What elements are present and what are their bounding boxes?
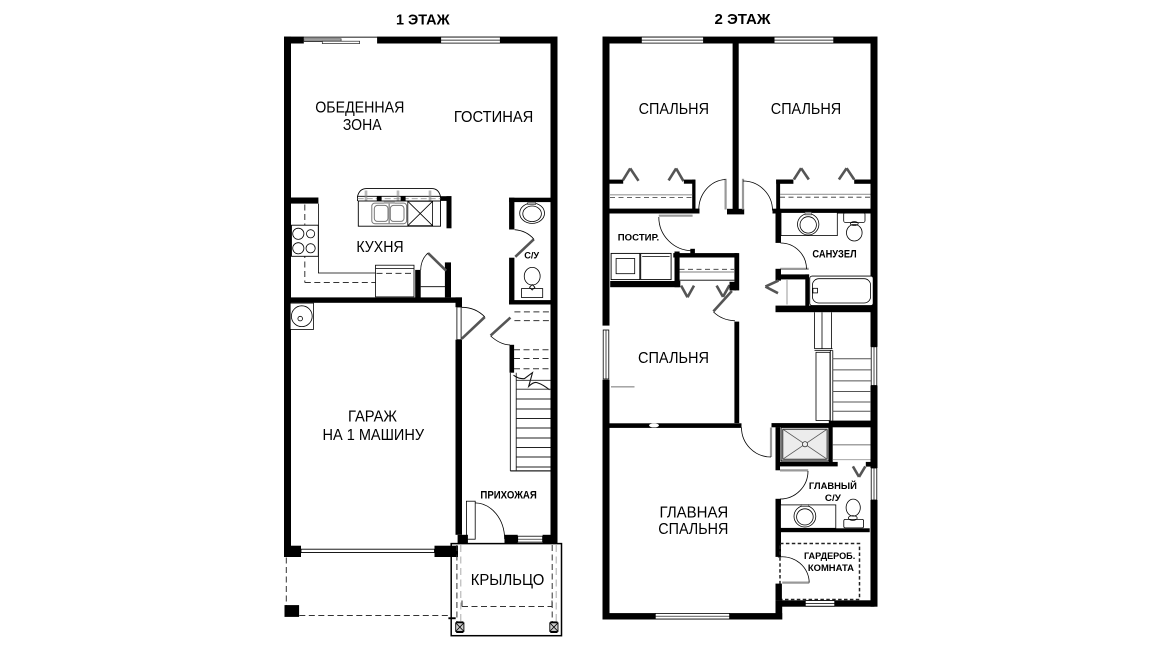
svg-text:СПАЛЬНЯ: СПАЛЬНЯ (639, 101, 709, 118)
svg-text:КРЫЛЬЦО: КРЫЛЬЦО (471, 572, 545, 589)
svg-text:СПАЛЬНЯ: СПАЛЬНЯ (771, 101, 841, 118)
svg-text:СПАЛЬНЯ: СПАЛЬНЯ (638, 350, 709, 367)
svg-text:1 ЭТАЖ: 1 ЭТАЖ (396, 12, 450, 29)
svg-text:ГАРАЖ: ГАРАЖ (348, 408, 398, 425)
svg-text:СПАЛЬНЯ: СПАЛЬНЯ (658, 521, 728, 538)
svg-text:2 ЭТАЖ: 2 ЭТАЖ (715, 11, 771, 28)
svg-text:ПОСТИР.: ПОСТИР. (618, 233, 659, 244)
svg-text:ГЛАВНАЯ: ГЛАВНАЯ (660, 505, 729, 522)
svg-text:С/У: С/У (825, 493, 842, 504)
svg-text:ЗОНА: ЗОНА (343, 117, 382, 134)
svg-text:ПРИХОЖАЯ: ПРИХОЖАЯ (480, 490, 536, 502)
svg-text:КУХНЯ: КУХНЯ (356, 239, 403, 256)
svg-text:ГЛАВНЫЙ: ГЛАВНЫЙ (809, 480, 857, 492)
svg-text:С/У: С/У (524, 251, 540, 262)
svg-text:ОБЕДЕННАЯ: ОБЕДЕННАЯ (315, 99, 404, 116)
svg-text:ГАРДЕРОБ.: ГАРДЕРОБ. (804, 551, 855, 562)
svg-text:ГОСТИНАЯ: ГОСТИНАЯ (454, 109, 533, 126)
svg-text:КОМНАТА: КОМНАТА (808, 563, 854, 574)
svg-text:САНУЗЕЛ: САНУЗЕЛ (812, 249, 856, 261)
svg-text:НА 1 МАШИНУ: НА 1 МАШИНУ (323, 427, 425, 444)
